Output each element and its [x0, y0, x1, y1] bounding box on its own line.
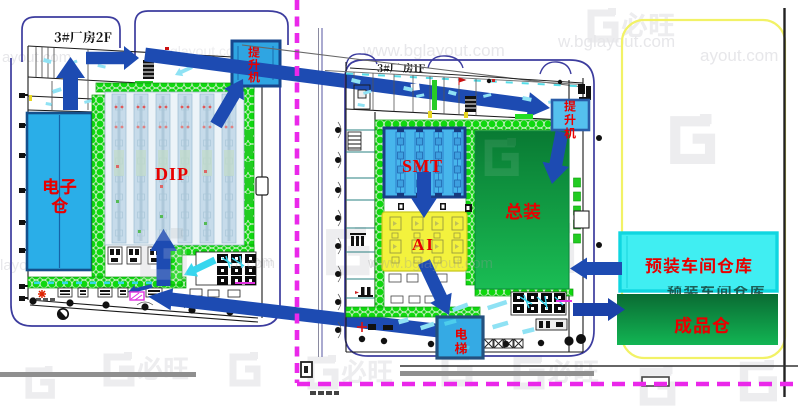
svg-text:www.bglayout.com: www.bglayout.com: [362, 41, 505, 60]
svg-text:DIP: DIP: [155, 164, 189, 184]
svg-text:ayout.com: ayout.com: [700, 46, 778, 65]
svg-text:ut.com: ut.com: [230, 255, 275, 272]
svg-text:ayout.com: ayout.com: [2, 49, 71, 66]
svg-text:www.bglayout.com: www.bglayout.com: [367, 255, 493, 272]
svg-text:w.bglayout.com: w.bglayout.com: [557, 32, 675, 51]
svg-text:AI: AI: [412, 235, 435, 254]
